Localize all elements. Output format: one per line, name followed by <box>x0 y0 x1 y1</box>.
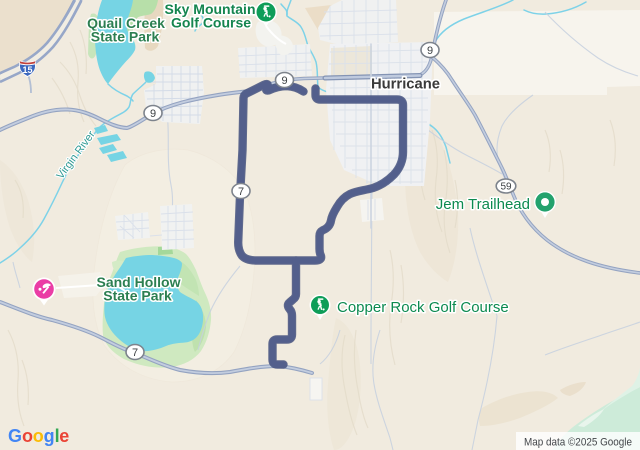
svg-text:Hurricane: Hurricane <box>371 77 440 93</box>
svg-text:Copper Rock Golf Course: Copper Rock Golf Course <box>337 299 509 316</box>
svg-text:g: g <box>44 426 55 446</box>
svg-text:7: 7 <box>238 186 244 198</box>
svg-text:15: 15 <box>22 65 32 75</box>
svg-text:9: 9 <box>150 108 156 120</box>
svg-text:o: o <box>22 426 33 446</box>
svg-text:Map data ©2025 Google: Map data ©2025 Google <box>524 437 632 449</box>
svg-text:State Park: State Park <box>91 29 160 45</box>
svg-text:59: 59 <box>500 182 512 193</box>
svg-text:o: o <box>33 426 44 446</box>
svg-text:9: 9 <box>427 45 433 57</box>
svg-text:Golf Course: Golf Course <box>171 15 251 31</box>
svg-text:State Park: State Park <box>103 288 172 304</box>
svg-text:7: 7 <box>132 347 138 359</box>
svg-text:G: G <box>8 426 22 446</box>
svg-text:e: e <box>59 426 69 446</box>
svg-text:9: 9 <box>281 75 287 87</box>
svg-text:Jem Trailhead: Jem Trailhead <box>436 196 530 213</box>
